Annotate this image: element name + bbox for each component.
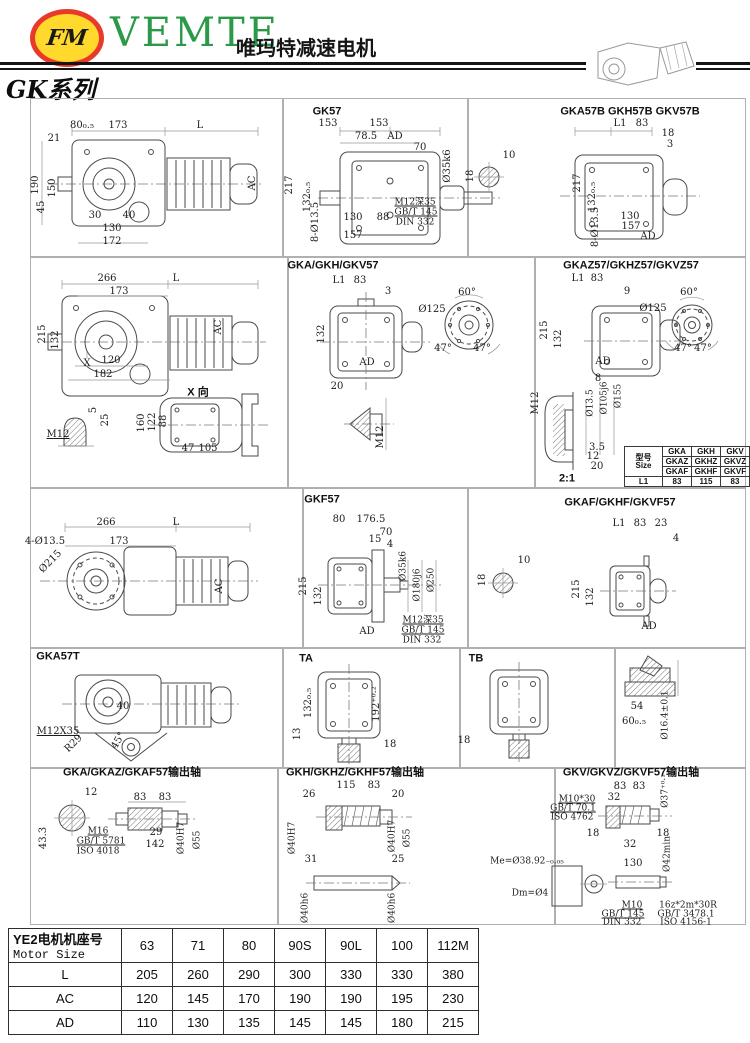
drawing-title: GKA57T [36,652,79,663]
dim-label: 20 [331,382,344,392]
motor-value-cell: 260 [173,963,224,987]
dim-label: Ø40h6 [389,893,398,923]
dim-label: 4 [673,534,679,544]
dim-label: 47° [473,344,491,354]
dim-label: 83 [591,274,604,284]
size-cell: GKAF [663,467,692,477]
drawing-title: GKH/GKHZ/GKHF57输出轴 [286,768,424,779]
motor-value-cell: 380 [428,963,479,987]
drawing-title: TB [469,654,484,665]
size-cell: 115 [692,477,721,487]
dim-layer: 80₀.₅173L21190150453040130172AC15315378.… [0,0,750,1043]
dim-label: L [197,121,204,131]
dim-label: 15 [369,535,382,545]
dim-label: 83 [636,119,649,129]
dim-label: 20 [392,790,405,800]
dim-label: 132 [51,330,61,349]
dim-label: 105 [198,444,217,454]
size-cell: GKV [721,447,750,457]
dim-label: 150 [48,178,58,197]
drawing-title: TA [299,654,313,665]
motor-table-header-cell: YE2电机机座号 Motor Size [9,929,122,963]
drawing-title: X 向 [187,388,208,399]
motor-value-cell: 205 [122,963,173,987]
dim-label: Ø125 [418,305,445,315]
dim-label: 83 [634,519,647,529]
dim-label: DIN 332 [403,637,442,646]
dim-label: 18 [478,574,488,587]
motor-frame-cell: 90S [275,929,326,963]
dim-label: 47° [694,344,712,354]
size-cell: GKAZ [663,457,692,467]
dim-label: 23 [655,519,668,529]
size-cell: L1 [625,477,663,487]
dim-label: Ø55 [404,829,413,848]
dim-label: 18 [458,736,471,746]
dim-label: 173 [109,537,128,547]
datasheet-page: FM VEMTE 唯玛特减速电机 GK系列 [0,0,750,1043]
size-cell: 83 [663,477,692,487]
dim-label: 132 [314,586,324,605]
dim-label: Ø37⁺⁰·¹ [662,774,671,808]
dim-label: 217 [573,173,583,192]
dim-label: 215 [540,320,550,339]
motor-value-cell: 120 [122,987,173,1011]
dim-label: Ø125 [639,304,666,314]
motor-value-cell: 135 [224,1011,275,1035]
dim-label: 47° [674,344,692,354]
motor-frame-cell: 112M [428,929,479,963]
drawing-title: GKV/GKVZ/GKVF57输出轴 [563,768,699,779]
dim-label: 115 [336,781,355,791]
dim-label: X [83,359,90,369]
dim-label: L [173,518,180,528]
dim-label: 153 [318,119,337,129]
motor-value-cell: 290 [224,963,275,987]
motor-value-cell: 330 [326,963,377,987]
dim-label: 83 [159,793,172,803]
dim-label: AC [215,579,225,594]
dim-label: Ø155 [615,384,624,409]
motor-value-cell: 330 [377,963,428,987]
dim-label: 173 [109,287,128,297]
dim-label: 215 [572,579,582,598]
motor-value-cell: 195 [377,987,428,1011]
dim-label: 26 [303,790,316,800]
dim-label: 18 [662,129,675,139]
dim-label: Ø42min [664,836,673,872]
dim-label: 30 [89,211,102,221]
dim-label: Ø40H7 [289,822,298,854]
dim-label: 25 [101,414,111,427]
dim-label: 130 [623,859,642,869]
dim-label: 130 [102,224,121,234]
dim-label: 153 [369,119,388,129]
size-cell: GKVF [721,467,750,477]
dim-label: 157 [621,222,640,232]
dim-label: AD [640,232,655,242]
dim-label: 160 [137,413,147,432]
dim-label: 217 [285,175,295,194]
motor-frame-cell: 71 [173,929,224,963]
dim-label: 45° [110,731,128,751]
dim-label: 132₀.₅ [304,688,314,718]
dim-label: GB/T 145 [402,627,445,636]
motor-table: YE2电机机座号 Motor Size 63 71 80 90S 90L 100… [8,928,479,1035]
motor-frame-cell: 80 [224,929,275,963]
dim-label: M12 [376,426,386,449]
motor-row-label: AC [9,987,122,1011]
dim-label: L1 [612,519,625,529]
size-cell: GKHF [692,467,721,477]
dim-label: 132 [317,324,327,343]
dim-label: M12 [531,392,541,415]
dim-label: 45 [37,201,47,214]
drawing-title: GKA57B GKH57B GKV57B [560,107,699,118]
drawing-title: GKAZ57/GKHZ57/GKVZ57 [563,261,699,272]
dim-label: 173 [108,121,127,131]
dim-label: 10 [518,556,531,566]
dim-label: 88 [159,415,169,428]
motor-value-cell: 180 [377,1011,428,1035]
motor-value-cell: 190 [275,987,326,1011]
dim-label: 78.5 [355,132,377,142]
dim-label: 83 [134,793,147,803]
dim-label: L1 [332,276,345,286]
dim-label: Ø40H7 [389,820,398,852]
dim-label: Ø250 [428,568,437,593]
dim-label: AD [595,357,610,367]
dim-label: 4-Ø13.5 [25,537,65,547]
dim-label: 83 [633,782,646,792]
dim-label: 190 [31,175,41,194]
dim-label: 47° [434,344,452,354]
dim-label: 25 [392,855,405,865]
dim-label: M12深35 [394,199,435,208]
dim-label: 266 [97,274,116,284]
dim-label: Ø16.4±0.1 [662,690,671,739]
dim-label: 60° [680,288,698,298]
dim-label: 32 [624,840,637,850]
dim-label: 10 [503,151,516,161]
dim-label: 47 [182,444,195,454]
dim-label: AD [641,622,656,632]
dim-label: 176.5 [357,515,386,525]
dim-label: 40 [117,702,130,712]
dim-label: ISO 4156-1 [660,919,712,928]
dim-label: DIN 332 [396,219,435,228]
motor-frame-cell: 100 [377,929,428,963]
dim-label: 80₀.₅ [70,121,94,131]
dim-label: GB/T 145 [395,209,438,218]
dim-label: 70 [414,143,427,153]
drawing-title: GKA/GKH/GKV57 [287,261,378,272]
dim-label: L1 [613,119,626,129]
dim-label: 142 [145,840,164,850]
dim-label: 83 [368,781,381,791]
dim-label: Ø40h6 [302,893,311,923]
dim-label: 122 [148,412,158,431]
size-table-header-cell: 型号 Size [625,447,663,477]
dim-label: ISO 4018 [77,848,120,857]
dim-label: 29 [150,828,163,838]
dim-label: M16 [88,828,109,837]
dim-label: Ø35k6 [443,149,453,182]
dim-label: 32 [608,793,621,803]
dim-label: AD [359,358,374,368]
motor-value-cell: 190 [326,987,377,1011]
motor-value-cell: 145 [275,1011,326,1035]
dim-label: 120 [101,356,120,366]
dim-label: 192⁺⁰·² [372,686,382,722]
dim-label: AC [214,320,224,335]
size-table-header-en: Size [626,462,661,470]
drawing-title: 2:1 [559,474,575,485]
size-cell: GKA [663,447,692,457]
dim-label: Dm=Ø4 [512,890,548,899]
dim-label: ISO 4762 [551,814,594,823]
dim-label: 130 [343,213,362,223]
dim-label: 12 [85,788,98,798]
dim-label: 60₀.₅ [622,717,646,727]
dim-label: 43.3 [39,827,49,849]
motor-row-label: AD [9,1011,122,1035]
dim-label: 157 [343,231,362,241]
dim-label: Ø215 [38,549,64,575]
drawing-title: GKAF/GKHF/GKVF57 [564,498,675,509]
motor-value-cell: 145 [326,1011,377,1035]
motor-frame-cell: 90L [326,929,377,963]
size-cell: 83 [721,477,750,487]
motor-frame-cell: 63 [122,929,173,963]
dim-label: 60° [458,288,476,298]
motor-value-cell: 145 [173,987,224,1011]
size-cell: GKHZ [692,457,721,467]
dim-label: 8-Ø13.5 [591,207,601,247]
dim-label: 5 [89,407,99,413]
dim-label: 3 [385,287,391,297]
dim-label: Ø40H7 [178,822,187,854]
dim-label: 182 [93,370,112,380]
dim-label: Ø13.5 [587,389,596,416]
dim-label: 88 [377,213,390,223]
dim-label: Ø105j6 [601,381,610,414]
dim-label: L1 [571,274,584,284]
dim-label: 4 [387,540,393,550]
dim-label: 215 [299,576,309,595]
motor-table-header-cn: YE2电机机座号 [13,929,119,948]
dim-label: 9 [624,287,630,297]
size-cell: GKVZ [721,457,750,467]
dim-label: 18 [466,170,476,183]
dim-label: L [173,274,180,284]
dim-label: Ø35k6 [400,551,409,581]
dim-label: 31 [305,855,318,865]
dim-label: 18 [384,740,397,750]
motor-value-cell: 230 [428,987,479,1011]
motor-value-cell: 170 [224,987,275,1011]
size-table: 型号 Size GKA GKH GKV GKAZ GKHZ GKVZ GKAF … [624,446,750,487]
motor-value-cell: 130 [173,1011,224,1035]
dim-label: 132 [586,587,596,606]
dim-label: 266 [96,518,115,528]
motor-row-label: L [9,963,122,987]
dim-label: 172 [102,237,121,247]
dim-label: 13 [293,728,303,741]
dim-label: AD [387,132,402,142]
dim-label: 3 [667,140,673,150]
motor-value-cell: 300 [275,963,326,987]
motor-table-header-en: Motor Size [13,948,119,962]
dim-label: AC [248,176,258,191]
dim-label: 54 [631,702,644,712]
dim-label: Ø55 [194,831,203,850]
dim-label: 132 [554,329,564,348]
dim-label: 18 [587,829,600,839]
motor-value-cell: 110 [122,1011,173,1035]
dim-label: GB/T 5781 [77,838,126,847]
dim-label: 21 [48,134,61,144]
dim-label: 40 [123,211,136,221]
drawing-title: GKF57 [304,495,339,506]
dim-label: 70 [380,528,393,538]
dim-label: M12深35 [402,617,443,626]
dim-label: M12 [47,430,70,440]
dim-label: AD [359,627,374,637]
motor-value-cell: 215 [428,1011,479,1035]
dim-label: Me=Ø38.92₋₀.₀₅ [490,858,564,867]
dim-label: Ø180j6 [414,568,423,601]
drawing-title: GKA/GKAZ/GKAF57输出轴 [63,768,201,779]
dim-label: 20 [591,462,604,472]
dim-label: 8-Ø13.5 [311,202,321,242]
dim-label: 80 [333,515,346,525]
dim-label: 215 [38,324,48,343]
drawing-title: GK57 [313,107,342,118]
dim-label: 83 [614,782,627,792]
size-cell: GKH [692,447,721,457]
dim-label: 83 [354,276,367,286]
dim-label: DIN 332 [603,919,642,928]
